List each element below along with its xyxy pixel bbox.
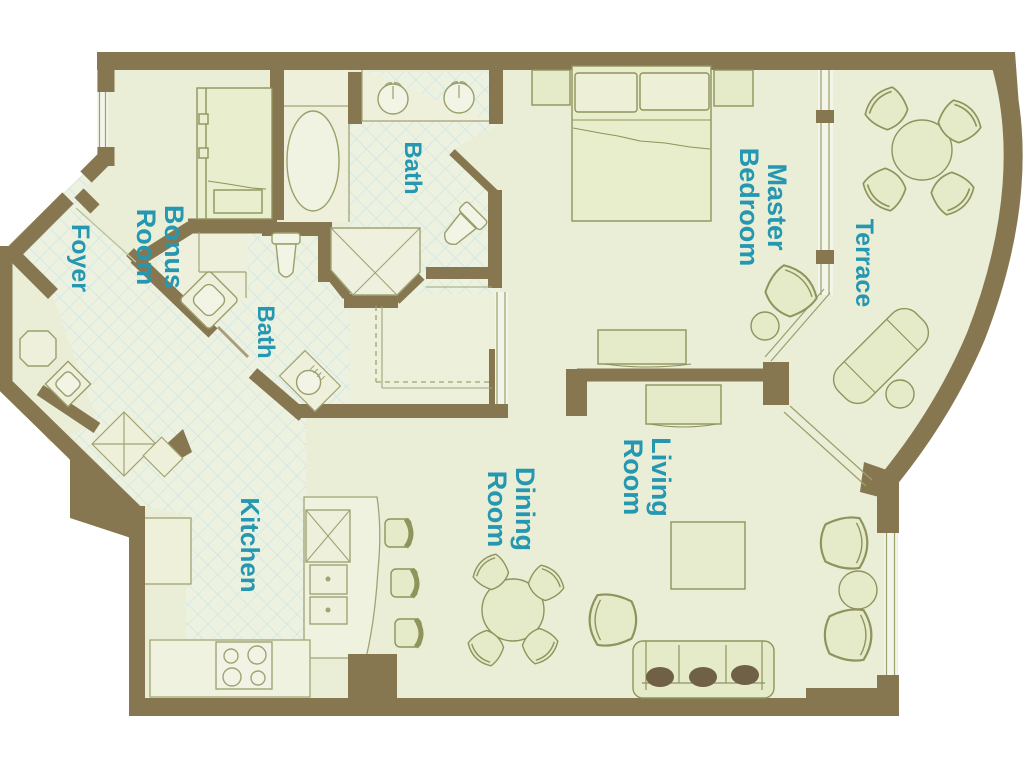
svg-text:BonusRoom: BonusRoom (131, 205, 189, 289)
svg-text:Foyer: Foyer (66, 224, 94, 292)
svg-text:Bath: Bath (252, 305, 279, 358)
svg-text:Bath: Bath (399, 141, 426, 194)
svg-text:DiningRoom: DiningRoom (482, 467, 540, 551)
svg-text:Kitchen: Kitchen (235, 497, 265, 592)
svg-text:Terrace: Terrace (850, 219, 878, 308)
svg-text:LivingRoom: LivingRoom (618, 437, 676, 517)
svg-text:MasterBedroom: MasterBedroom (734, 148, 792, 267)
